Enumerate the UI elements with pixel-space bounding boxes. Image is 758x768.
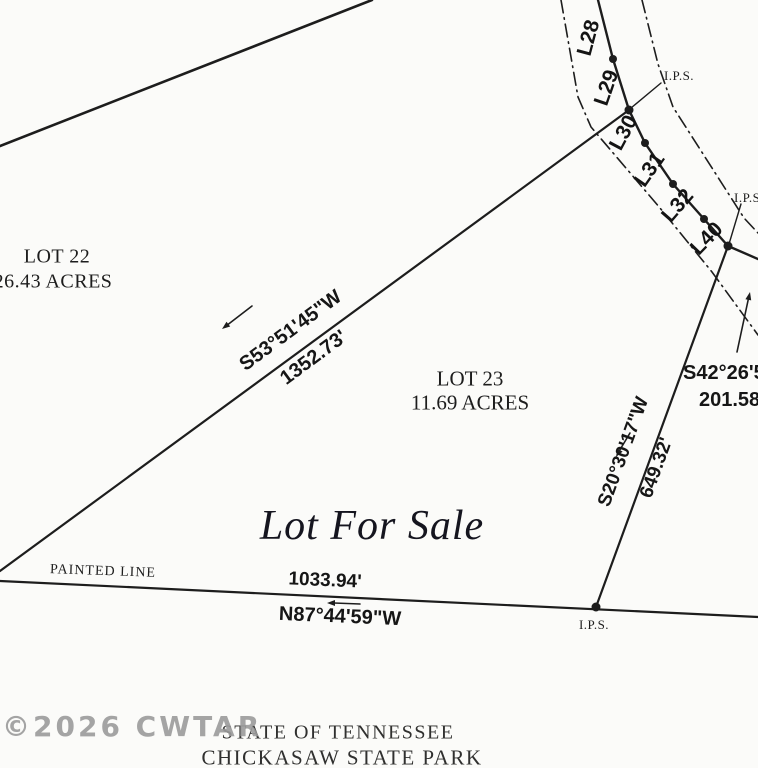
ips-right-leader-line	[729, 204, 741, 244]
lot23-label: LOT 23	[437, 367, 504, 392]
survey-plat-map: LOT 22 26.43 ACRES LOT 23 11.69 ACRES Lo…	[0, 0, 758, 768]
south-distance-label: 1033.94'	[288, 568, 362, 593]
station-point	[609, 55, 617, 63]
northeast-dimension-arrow-line	[737, 296, 749, 352]
ips-top-label: I.P.S.	[664, 68, 694, 84]
ips-bottom-label: I.P.S.	[579, 617, 609, 633]
station-point-ips-right	[724, 242, 733, 251]
station-point	[641, 139, 649, 147]
northeast-dimension-arrowhead	[745, 292, 751, 300]
station-point-ips-bottom	[592, 603, 601, 612]
west-dimension-arrow-line	[226, 306, 252, 326]
lot-for-sale-label: Lot For Sale	[260, 502, 484, 550]
south-dimension-arrow-line	[334, 603, 360, 604]
ips-top-leader-line	[631, 83, 661, 108]
lot22-label: LOT 22	[24, 246, 91, 269]
north-boundary-line	[0, 0, 372, 146]
adjoiner-line2: CHICKASAW STATE PARK	[201, 746, 482, 768]
lot23-acreage: 11.69 ACRES	[411, 391, 529, 416]
ips-right-label: I.P.S.	[734, 190, 758, 206]
northeast-distance-label: 201.58	[699, 389, 758, 412]
copyright-watermark: ©2026 CWTAR	[2, 710, 262, 743]
lot22-acreage: 26.43 ACRES	[0, 271, 112, 294]
plat-linework	[0, 0, 758, 768]
northeast-bearing-label: S42°26'5	[683, 362, 758, 385]
station-point	[669, 180, 677, 188]
east-boundary-line	[596, 246, 728, 607]
